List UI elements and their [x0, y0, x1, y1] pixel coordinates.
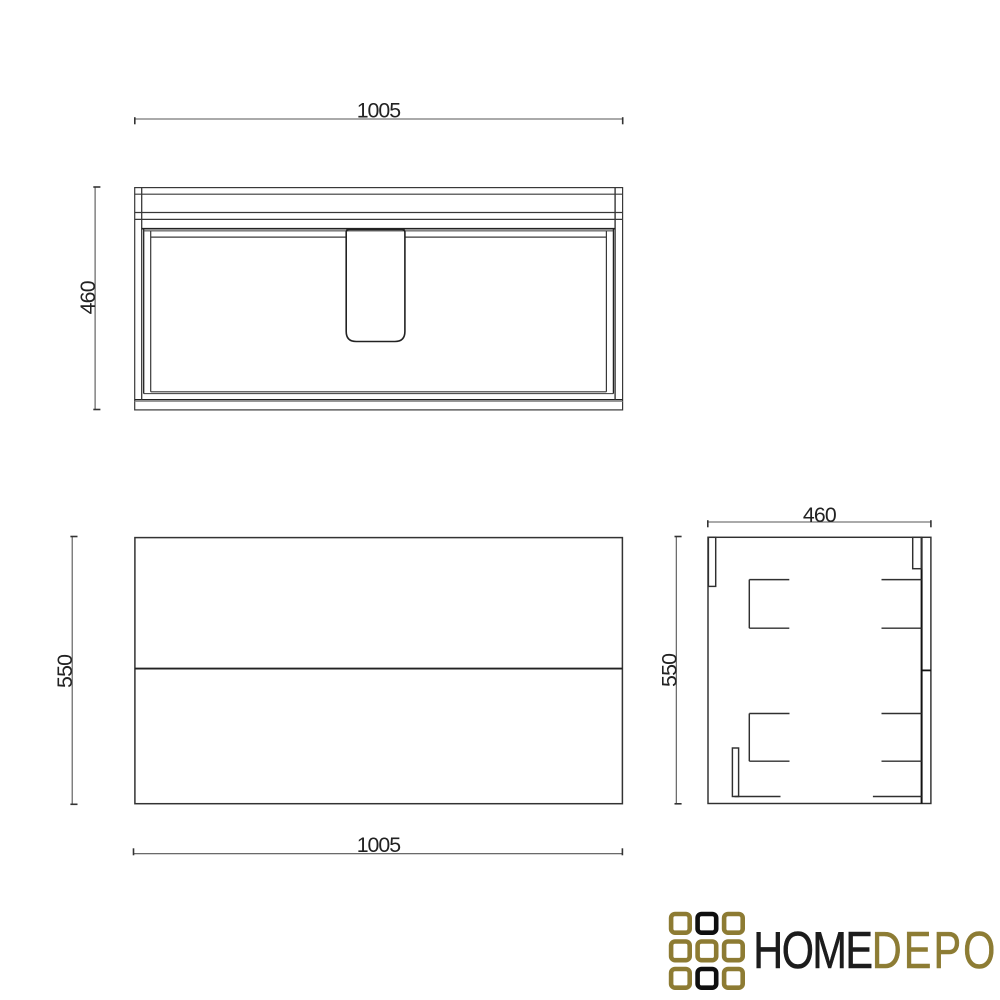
svg-text:550: 550 [657, 653, 681, 687]
svg-text:1005: 1005 [357, 99, 401, 123]
svg-text:460: 460 [76, 280, 100, 314]
svg-text:1005: 1005 [357, 833, 401, 857]
svg-text:550: 550 [53, 654, 77, 688]
svg-text:460: 460 [803, 503, 837, 527]
svg-text:HOME: HOME [753, 922, 872, 979]
svg-text:DEPO: DEPO [872, 922, 998, 979]
